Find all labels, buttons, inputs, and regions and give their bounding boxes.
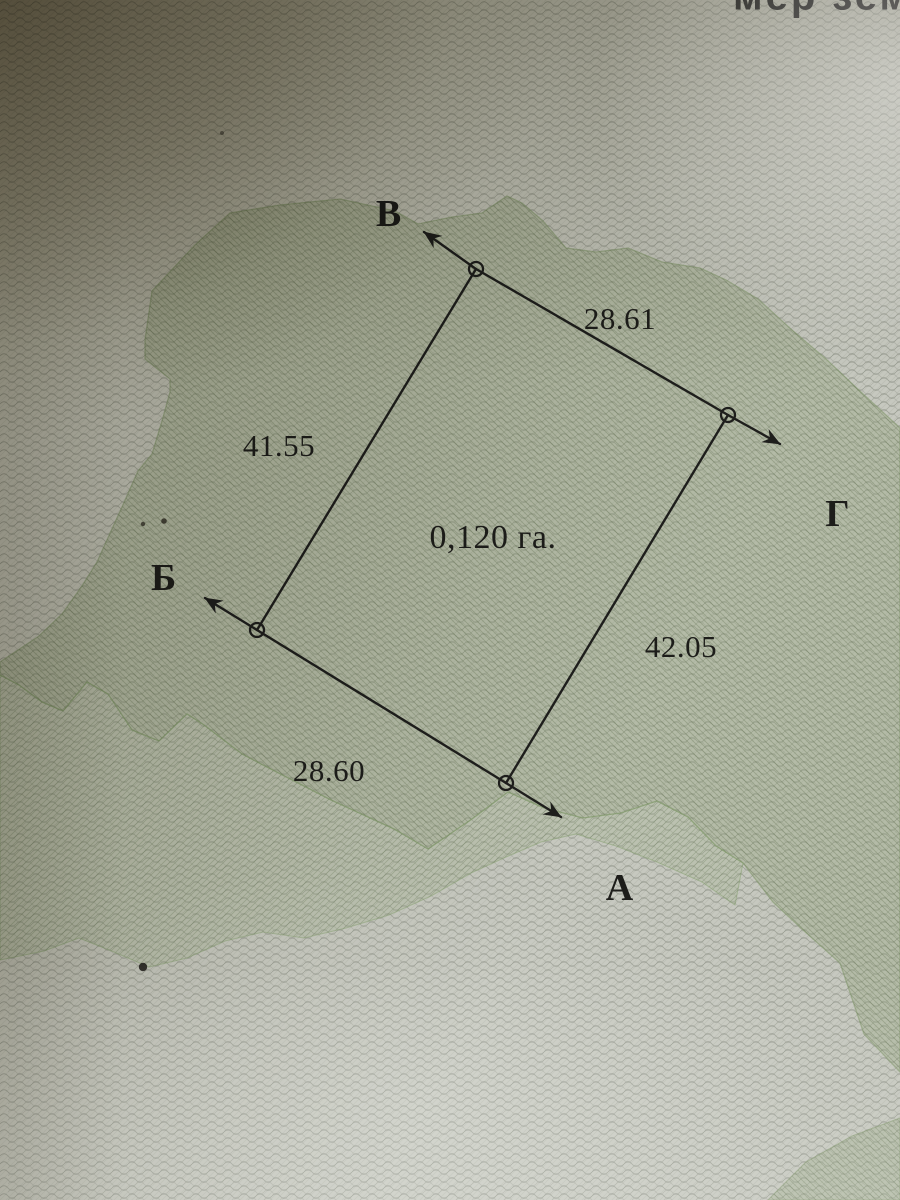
boundary-arrow-v: [424, 232, 476, 269]
boundary-arrow-b: [205, 598, 257, 630]
vertex-label-a: А: [606, 867, 634, 909]
plot-side-g-a: [506, 415, 728, 783]
side-length-a-g: 42.05: [645, 629, 717, 664]
side-length-a-b: 28.60: [293, 753, 365, 788]
boundary-arrow-g: [728, 415, 780, 444]
plot-side-v-g: [476, 269, 728, 415]
vertex-label-b: Б: [151, 557, 177, 599]
vertex-label-g: Г: [825, 493, 850, 535]
boundary-arrow-a: [506, 783, 561, 817]
vertex-label-v: В: [376, 193, 402, 235]
side-length-b-v: 41.55: [243, 428, 315, 463]
clipped-header-text: мер зем: [733, 0, 900, 19]
area-label: 0,120 га.: [429, 519, 556, 556]
plot-plan: В Г Б А 28.61 41.55 42.05 28.60 0,120 га…: [0, 0, 900, 1200]
scanned-land-act-photo: В Г Б А 28.61 41.55 42.05 28.60 0,120 га…: [0, 0, 900, 1200]
side-length-v-g: 28.61: [584, 301, 656, 336]
